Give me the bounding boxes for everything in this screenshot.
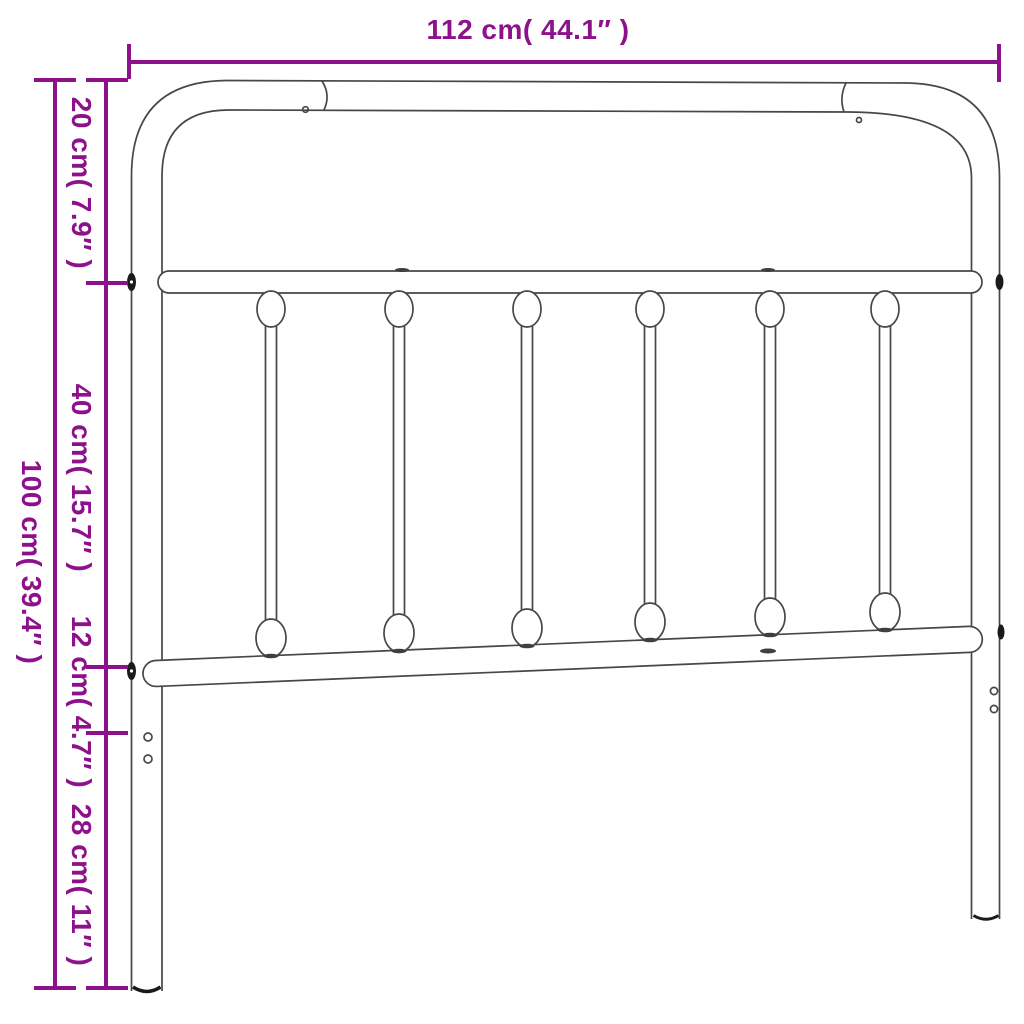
leg-screw-hole	[990, 687, 997, 694]
top-rail	[158, 271, 982, 293]
spindle	[256, 291, 286, 657]
rail-section-dimension-label: 12 cm( 4.7″ )	[65, 616, 97, 788]
dim-line-total-height	[53, 78, 57, 990]
dim-tick	[34, 986, 76, 990]
dim-tick	[34, 78, 76, 82]
dim-tick	[86, 78, 128, 82]
leg-screw-hole	[144, 755, 152, 763]
spindle-section-dimension-label: 40 cm( 15.7″ )	[65, 384, 97, 573]
screw-hole	[857, 118, 862, 123]
dim-tick	[997, 44, 1001, 82]
leg-cap-right	[974, 916, 999, 920]
spindle	[384, 291, 414, 652]
leg-section-dimension-label: 28 cm( 11″ )	[65, 804, 97, 967]
spindle	[755, 291, 785, 636]
leg-cap-left	[133, 987, 161, 992]
total-height-dimension-label: 100 cm( 39.4″ )	[15, 460, 47, 665]
dim-line-segments	[104, 78, 108, 990]
headboard-drawing	[0, 0, 1024, 1024]
dim-tick	[86, 986, 128, 990]
spindle	[635, 291, 665, 641]
leg-screw-hole	[144, 733, 152, 741]
width-dimension-label: 112 cm( 44.1″ )	[426, 14, 629, 46]
dim-tick	[86, 281, 128, 285]
weld-seam-left	[322, 81, 327, 110]
leg-screw-hole	[990, 705, 997, 712]
weld-marks	[395, 268, 776, 654]
top-section-dimension-label: 20 cm( 7.9″ )	[65, 97, 97, 269]
dim-line-width	[129, 60, 1000, 64]
dim-tick	[127, 44, 131, 79]
frame-outer-edge	[132, 81, 1000, 992]
dimension-diagram: 112 cm( 44.1″ ) 20 cm( 7.9″ ) 40 cm( 15.…	[0, 0, 1024, 1024]
spindle	[512, 291, 542, 647]
spindle	[870, 291, 900, 631]
weld-seam-right	[842, 83, 846, 112]
frame-inner-edge	[162, 110, 972, 991]
